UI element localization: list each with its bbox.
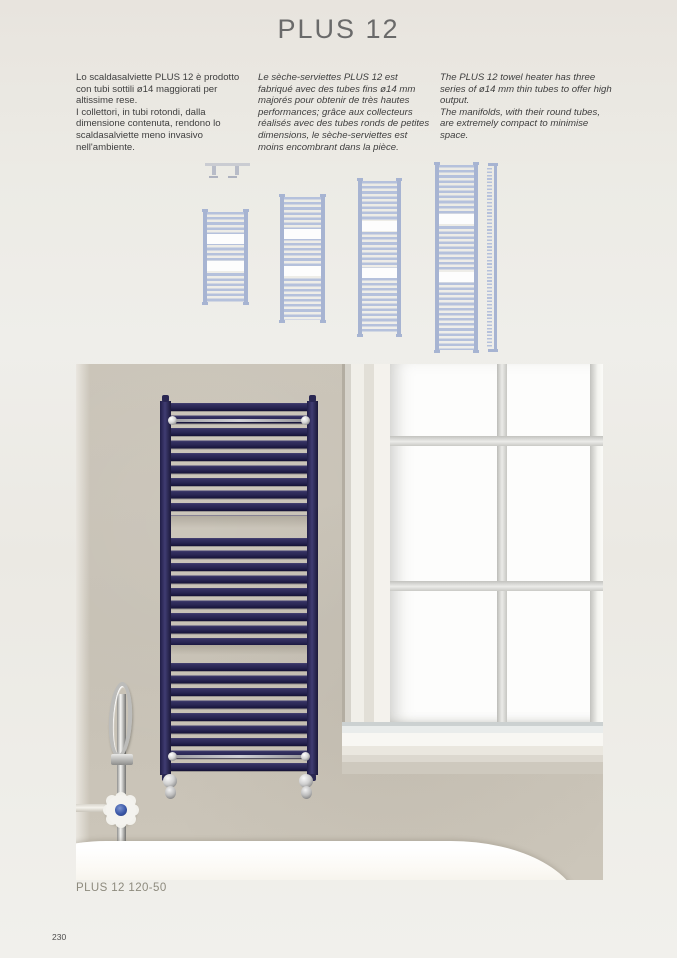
radiator-top-view-drawing xyxy=(205,163,250,178)
faucet-collar xyxy=(111,754,133,765)
wall-corner-highlight xyxy=(76,364,90,880)
intro-text-italian: Lo scaldasalviette PLUS 12 è prodotto co… xyxy=(76,72,250,153)
towel-radiator xyxy=(160,403,318,785)
air-vent-icon xyxy=(301,416,310,425)
air-vent-icon xyxy=(168,416,177,425)
radiator-front-drawing-size-3 xyxy=(358,181,401,334)
air-vent-icon xyxy=(168,752,177,761)
radiator-vent-rail-bottom xyxy=(172,755,306,758)
photo-caption: PLUS 12 120-50 xyxy=(76,882,167,894)
radiator-valve-left xyxy=(162,774,178,806)
radiator-side-view-drawing xyxy=(487,165,497,350)
faucet-spout-loop xyxy=(107,681,134,758)
product-photo xyxy=(76,364,603,880)
page-number: 230 xyxy=(52,932,66,942)
radiator-vent-rail-top xyxy=(172,419,306,422)
window-muntin-horizontal-lower xyxy=(390,581,603,591)
page-title: PLUS 12 xyxy=(0,14,677,45)
radiator-towel-gap-upper xyxy=(164,516,314,538)
radiator-front-drawing-size-2 xyxy=(280,197,325,320)
intro-text-english: The PLUS 12 towel heater has three serie… xyxy=(440,72,614,142)
radiator-towel-gap-lower xyxy=(164,645,314,663)
radiator-valve-right xyxy=(298,774,314,806)
bathtub xyxy=(76,841,581,880)
window-right-frame xyxy=(590,364,603,722)
window-muntin-horizontal-upper xyxy=(390,436,603,446)
intro-text-french: Le sèche-serviettes PLUS 12 est fabriqué… xyxy=(258,72,432,153)
air-vent-icon xyxy=(301,752,310,761)
window-sill xyxy=(342,722,603,774)
radiator-front-drawing-size-4 xyxy=(435,165,478,350)
radiator-collector-left xyxy=(160,401,171,775)
faucet-valve-handle xyxy=(106,795,136,825)
catalog-page: PLUS 12 Lo scaldasalviette PLUS 12 è pro… xyxy=(0,0,677,958)
radiator-front-drawing-size-1 xyxy=(203,212,248,302)
window-frame-molding xyxy=(342,364,390,774)
window-muntin-vertical xyxy=(497,364,507,722)
radiator-tube-section-middle xyxy=(164,538,314,645)
radiator-collector-right xyxy=(307,401,318,775)
